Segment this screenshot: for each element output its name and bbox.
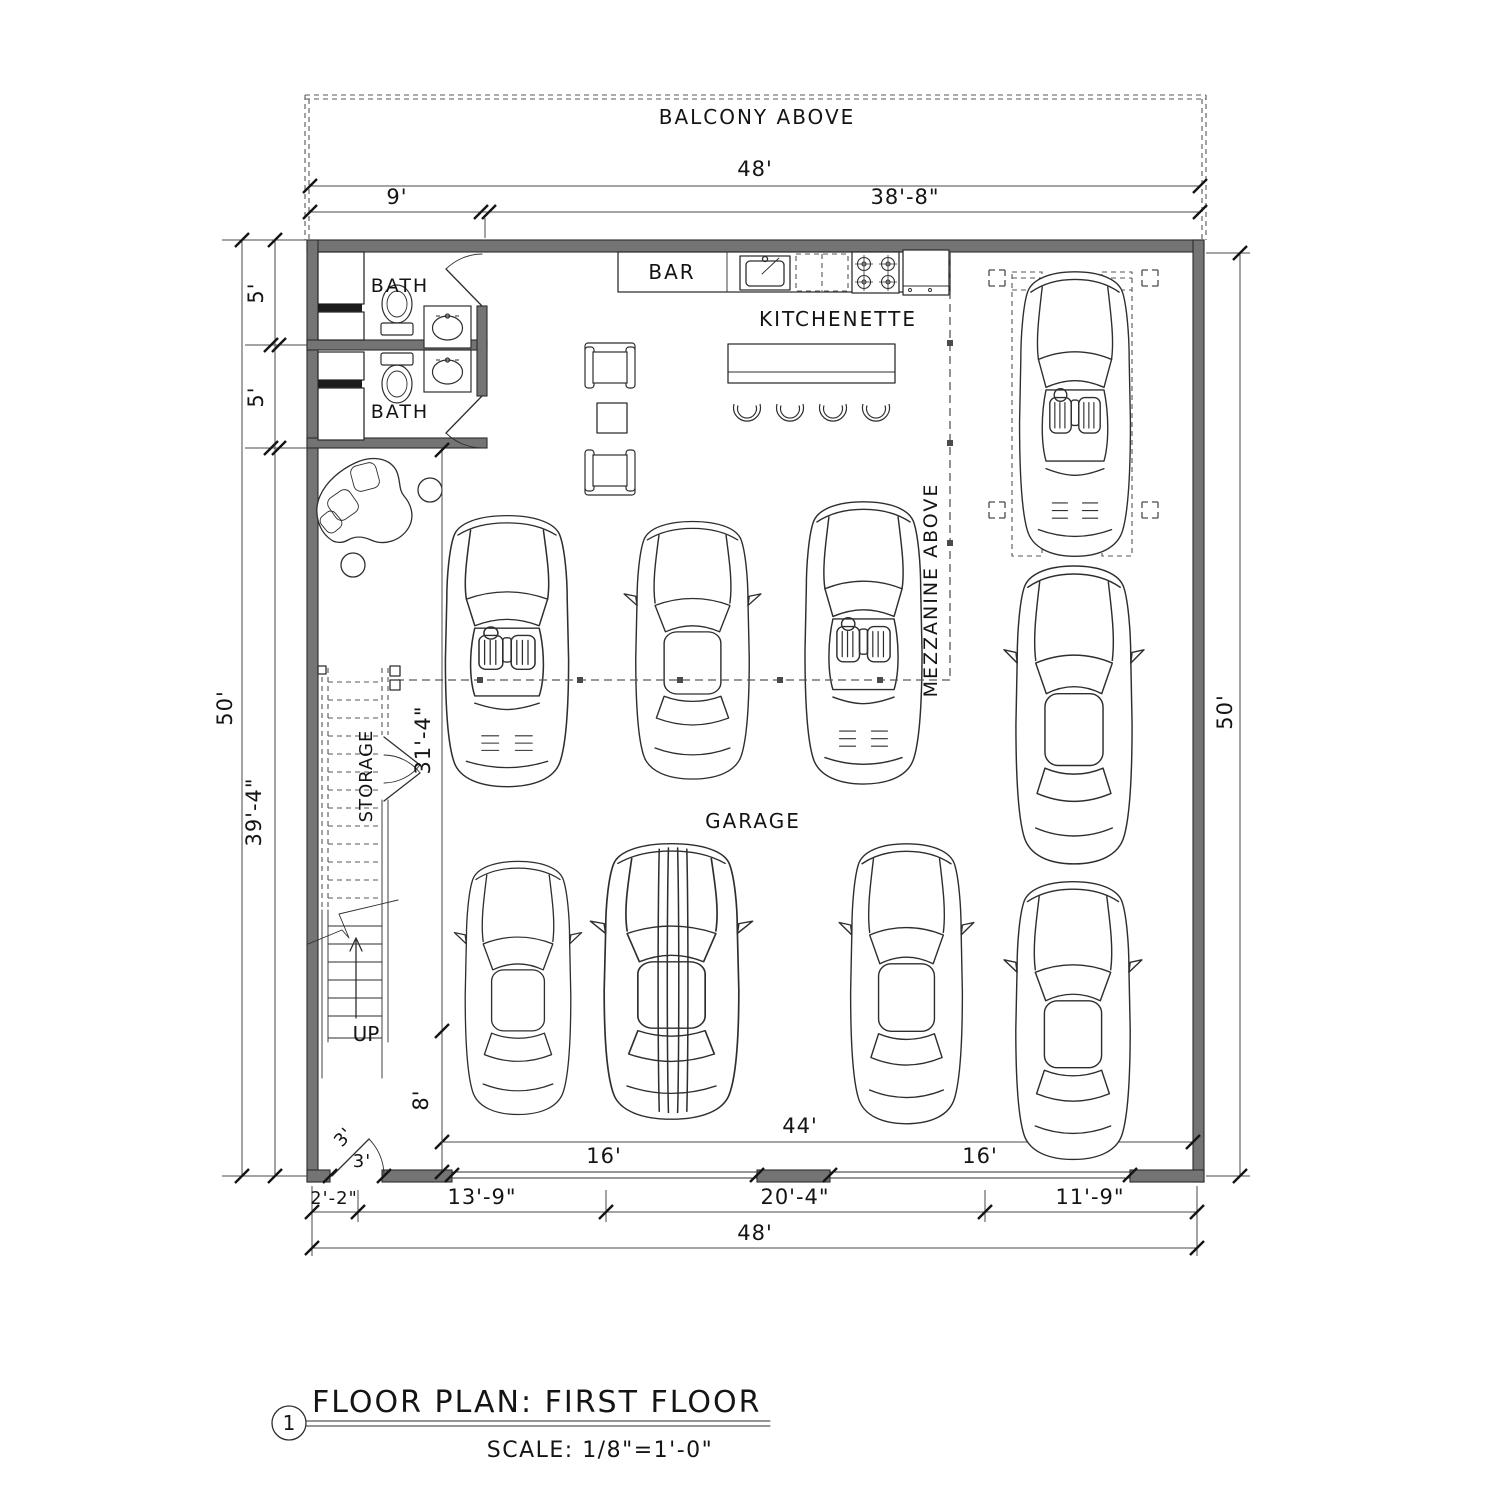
dim-bottom-overall: 48' [737, 1221, 773, 1245]
floor-plan-drawing: BALCONY ABOVE 48' 9' 38'-8" BATH BATH [0, 0, 1489, 1489]
refrigerator [903, 250, 949, 295]
drawing-scale: SCALE: 1/8"=1'-0" [487, 1438, 714, 1463]
garage-label: GARAGE [705, 809, 801, 833]
dim-entry-width: 3' [353, 1151, 371, 1172]
stairs: UP STORAGE [308, 666, 398, 1078]
bath-upper: BATH [318, 252, 482, 348]
car-on-lift [1020, 272, 1131, 556]
car-roadster-upper-left [445, 516, 568, 787]
mezzanine-label: MEZZANINE ABOVE [920, 483, 942, 698]
dim-44: 44' [782, 1114, 818, 1138]
dim-top-left: 9' [386, 185, 407, 209]
round-stool [418, 478, 442, 502]
dim-top-right: 38'-8" [870, 185, 939, 209]
dim-31-4: 31'-4" [411, 705, 435, 774]
dim-top-overall: 48' [737, 157, 773, 181]
dim-seg3: 20'-4" [760, 1185, 829, 1209]
car-lift [989, 270, 1158, 556]
stove [852, 252, 899, 293]
toilet-lower [381, 353, 413, 403]
round-stool [341, 553, 365, 577]
dim-interior-vertical: 31'-4" 8' [409, 443, 449, 1179]
armchair [585, 343, 635, 388]
car-coupe-upper-mid [624, 521, 761, 779]
dim-left-overall: 50' [213, 690, 237, 726]
dim-8: 8' [409, 1089, 433, 1110]
dim-right-overall: 50' [1213, 694, 1237, 730]
bar-stool [820, 404, 847, 421]
dim-left-mid: 5' [244, 386, 268, 407]
bath-upper-label: BATH [371, 275, 429, 297]
car-sports-lower-left [454, 861, 581, 1114]
side-table [597, 403, 627, 433]
dim-left: 50' 5' 5' 39'-4" [213, 233, 307, 1183]
bath-lower: BATH [318, 350, 482, 448]
dim-seg1: 2'-2" [310, 1188, 358, 1209]
dim-left-upper: 5' [244, 282, 268, 303]
bar-label: BAR [648, 260, 695, 284]
car-sedan-right-upper [1004, 566, 1144, 864]
storage-label: STORAGE [356, 730, 377, 823]
drawing-title: FLOOR PLAN: FIRST FLOOR [312, 1385, 761, 1420]
title-block: 1 FLOOR PLAN: FIRST FLOOR SCALE: 1/8"=1'… [272, 1385, 770, 1463]
up-label: UP [353, 1022, 380, 1046]
dim-seg2: 13'-9" [447, 1185, 516, 1209]
dim-right: 50' [1206, 246, 1250, 1183]
bath-upper-door [446, 254, 482, 306]
kidney-desk [317, 459, 442, 577]
dim-entry-swing: 3' [330, 1123, 358, 1151]
sink-upper [424, 306, 471, 348]
lounge-seating [585, 343, 635, 495]
stair-up-arrow [350, 938, 362, 1018]
car-convertible-upper-right [805, 502, 922, 784]
dim-16-right: 16' [962, 1144, 998, 1168]
bar-sink [740, 256, 790, 290]
floor-plan-sheet: BALCONY ABOVE 48' 9' 38'-8" BATH BATH [0, 0, 1489, 1489]
entry-door: 3' 3' [323, 1123, 391, 1183]
kitchenette-label: KITCHENETTE [759, 307, 917, 331]
car-muscle-lower-mid [590, 844, 752, 1120]
bar-stool [734, 404, 761, 421]
dim-bottom: 2'-2" 13'-9" 20'-4" 11'-9" 48' [305, 1185, 1204, 1256]
bar-stool [777, 404, 804, 421]
balcony-label: BALCONY ABOVE [659, 105, 856, 129]
dim-16-left: 16' [586, 1144, 622, 1168]
dim-left-lower: 39'-4" [242, 777, 266, 846]
bar-counter: BAR KITCHENETTE [618, 250, 950, 331]
sink-lower [424, 350, 471, 392]
title-underline [306, 1421, 770, 1426]
bath-lower-label: BATH [371, 401, 429, 423]
car-sports-lower-right [1004, 882, 1142, 1160]
sheet-number: 1 [283, 1411, 296, 1435]
kitchenette-island [728, 344, 895, 421]
dim-top: 48' 9' 38'-8" [303, 157, 1207, 238]
car-sedan-lower-mid [839, 844, 974, 1124]
armchair [585, 450, 635, 495]
bar-stool [863, 404, 890, 421]
dim-seg4: 11'-9" [1055, 1185, 1124, 1209]
